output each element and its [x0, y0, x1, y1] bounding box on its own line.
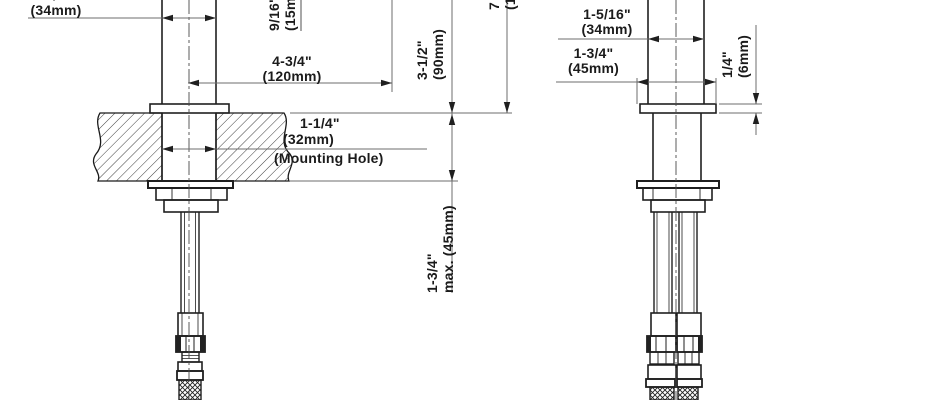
base-plate — [150, 104, 229, 113]
escutcheon — [640, 104, 716, 113]
faucet-dimension-diagram: 1-5/16" (34mm) 9/16" (15mm) 4-3/4" (120m… — [0, 0, 940, 400]
dim-label-base-width: 1-3/4" (45mm) — [556, 46, 631, 76]
dim-label-counter-thickness: 1-3/4" max. (45mm) — [424, 205, 456, 293]
hose-connectors — [646, 313, 702, 400]
dim-label-base-height: 1/4" (6mm) — [719, 35, 751, 78]
dim-label-mounting-hole-inch: 1-1/4" — [300, 116, 340, 131]
hose-connector — [176, 313, 205, 400]
braided-hose-end — [179, 380, 201, 400]
dim-label-left-reach: 4-3/4" (120mm) — [252, 54, 332, 84]
washer — [637, 181, 719, 188]
dim-label-clipped-height: 7 (1 — [486, 0, 518, 10]
dim-label-right-body-width: 1-5/16" (34mm) — [574, 7, 640, 37]
dim-label-left-height: 3-1/2" (90mm) — [414, 29, 446, 80]
dim-label-left-body-width: 1-5/16" (34mm) — [18, 0, 94, 18]
countertop-left-section — [93, 113, 162, 181]
countertop-right-section — [216, 113, 292, 181]
dim-label-left-spout: 9/16" (15mm) — [266, 0, 298, 31]
linework — [0, 0, 940, 400]
mounting-nut — [156, 188, 227, 200]
washer — [148, 181, 233, 188]
dim-label-mounting-hole-mm: (32mm) — [283, 132, 334, 147]
right-faucet-view — [637, 0, 719, 400]
dim-label-mounting-hole-note: (Mounting Hole) — [274, 151, 384, 166]
